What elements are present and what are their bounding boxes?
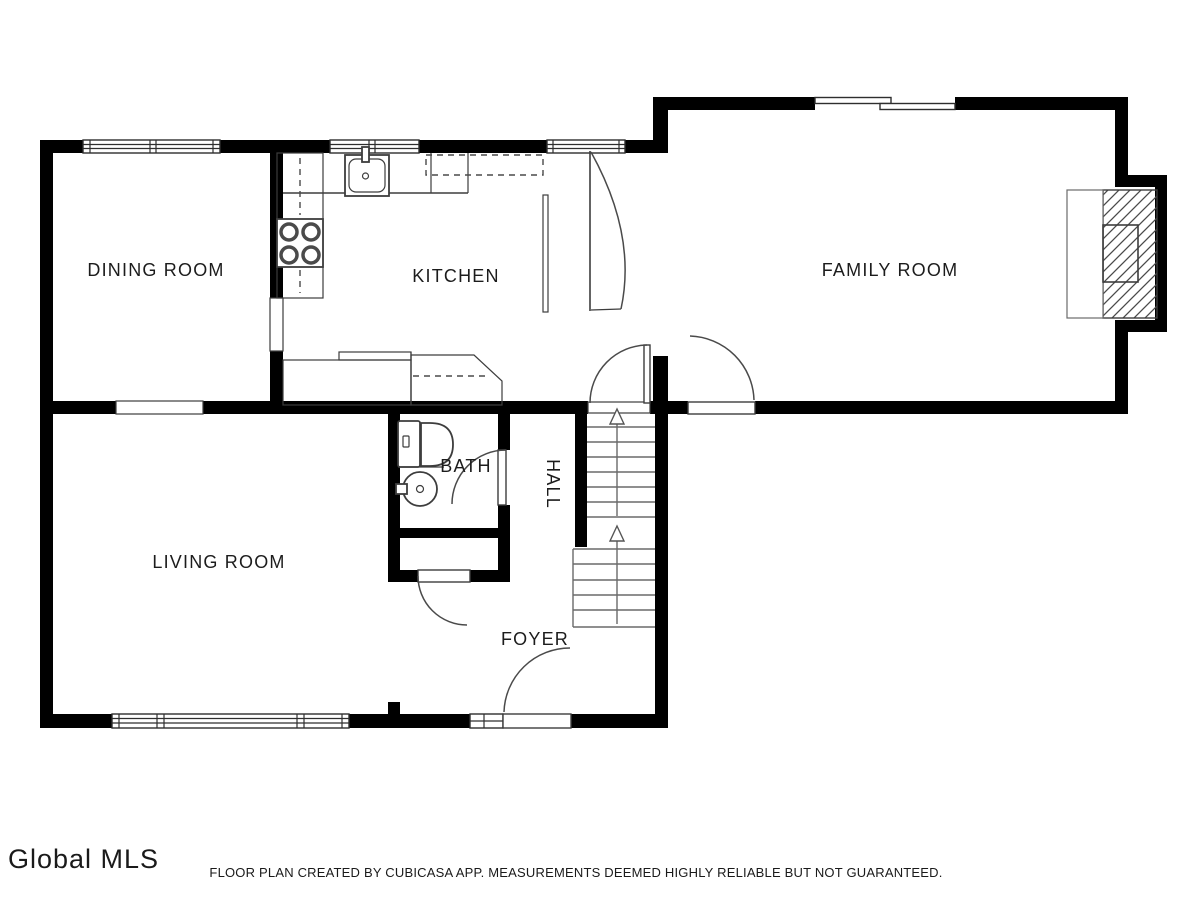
bath-sink (396, 472, 437, 506)
stairs-upper-flight (587, 427, 655, 517)
door-kitchen-family (590, 151, 625, 311)
door-hall-kitchen (588, 345, 650, 413)
hall-label: HALL (543, 459, 563, 509)
room-labels: DINING ROOM KITCHEN FAMILY ROOM LIVING R… (87, 260, 958, 649)
fireplace (1067, 175, 1167, 332)
kitchen-sink (345, 147, 389, 196)
kitchen-label: KITCHEN (412, 266, 499, 286)
hearth (1067, 190, 1103, 318)
disclaimer-text: FLOOR PLAN CREATED BY CUBICASA APP. MEAS… (209, 865, 942, 880)
wall-openings (116, 298, 283, 414)
upper-cabinets-dashed (426, 155, 543, 175)
door-family-rear (688, 336, 755, 414)
window-living-bottom (112, 714, 349, 728)
window-foyer-sidelite (470, 714, 503, 728)
family-room-label: FAMILY ROOM (822, 260, 959, 280)
window-kitchen-top (547, 140, 625, 153)
stove (277, 153, 323, 298)
dining-room-label: DINING ROOM (87, 260, 224, 280)
bath-label: BATH (440, 456, 491, 476)
footer: Global MLS FLOOR PLAN CREATED BY CUBICAS… (8, 844, 943, 880)
floor-plan-page: DINING ROOM KITCHEN FAMILY ROOM LIVING R… (0, 0, 1200, 900)
kitchen-peninsula (283, 352, 502, 405)
counter-return (543, 195, 548, 312)
global-mls-logo: Global MLS (8, 844, 159, 874)
foyer-label: FOYER (501, 629, 569, 649)
dining-kitchen-opening (270, 298, 283, 351)
floor-plan-drawing: DINING ROOM KITCHEN FAMILY ROOM LIVING R… (0, 0, 1200, 900)
door-front-entry (503, 648, 571, 728)
window-dining-top (83, 140, 220, 153)
door-closet (418, 570, 470, 625)
dining-living-opening (116, 401, 203, 414)
window-kitchen-left-top (330, 140, 419, 153)
living-room-label: LIVING ROOM (152, 552, 285, 572)
window-family-sliding (815, 98, 955, 110)
stairs-lower-flight (573, 549, 655, 627)
stairs-up-arrow-1 (610, 409, 624, 516)
